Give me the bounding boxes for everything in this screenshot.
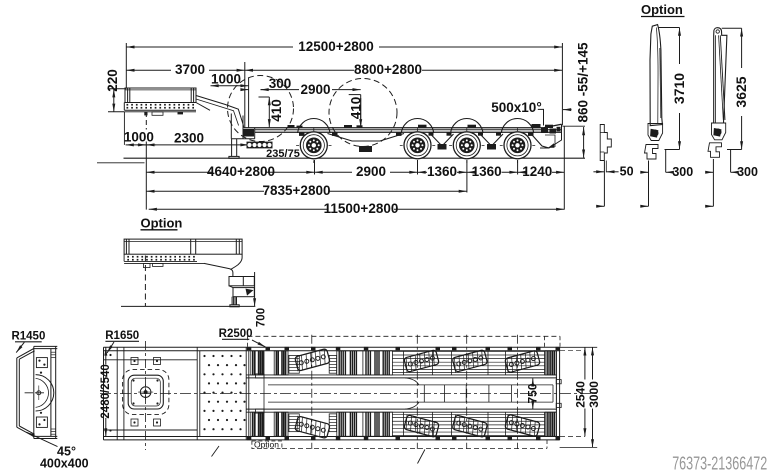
svg-text:11500+2800: 11500+2800 [324,201,399,216]
svg-text:76373-21366472: 76373-21366472 [672,453,767,473]
svg-text:2540: 2540 [574,381,588,408]
svg-text:R1450: R1450 [11,330,45,342]
svg-text:300: 300 [269,76,292,91]
svg-text:3000: 3000 [587,381,601,408]
svg-text:235/75: 235/75 [266,148,300,160]
svg-text:700: 700 [256,308,268,327]
svg-text:410: 410 [348,97,363,120]
svg-text:50: 50 [620,165,634,179]
svg-text:1240: 1240 [522,164,552,179]
svg-text:4640+2800: 4640+2800 [207,164,275,179]
svg-text:2900: 2900 [356,164,386,179]
svg-text:2900: 2900 [300,82,330,97]
svg-text:R1650: R1650 [105,330,139,342]
svg-text:220: 220 [105,69,120,92]
svg-text:12500+2800: 12500+2800 [298,39,373,54]
svg-text:1360: 1360 [427,164,457,179]
svg-text:8800+2800: 8800+2800 [354,62,422,77]
svg-text:3625: 3625 [733,76,749,107]
svg-text:860 -55/+145: 860 -55/+145 [576,42,591,122]
svg-text:Option: Option [254,439,279,449]
svg-text:1000: 1000 [211,72,241,87]
svg-text:2300: 2300 [174,131,204,146]
svg-text:400x400: 400x400 [40,456,89,470]
svg-text:1000: 1000 [124,129,154,144]
svg-text:750: 750 [526,383,540,403]
svg-text:1360: 1360 [472,164,502,179]
svg-text:3700: 3700 [175,62,205,77]
svg-text:300: 300 [672,165,693,179]
svg-text:3710: 3710 [671,73,687,104]
svg-text:300: 300 [737,165,758,179]
svg-text:7835+2800: 7835+2800 [263,183,331,198]
svg-text:410: 410 [269,99,284,122]
svg-text:2480/2540: 2480/2540 [100,364,112,418]
svg-text:R2500: R2500 [219,328,253,340]
svg-text:Option: Option [141,215,183,230]
svg-text:500x10°: 500x10° [491,100,541,115]
svg-text:Option: Option [641,2,683,17]
